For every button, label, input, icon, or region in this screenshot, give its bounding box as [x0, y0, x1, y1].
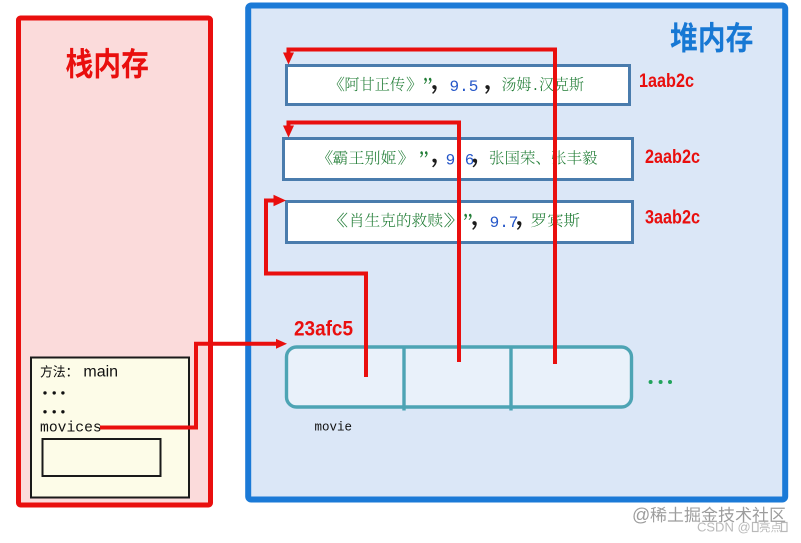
- svg-text:9.7: 9.7: [490, 214, 519, 232]
- svg-text:3aab2c: 3aab2c: [645, 208, 700, 229]
- svg-text:movices: movices: [40, 421, 102, 437]
- svg-text:movie: movie: [315, 421, 353, 435]
- svg-text:.: .: [532, 79, 540, 94]
- svg-text:CSDN @: CSDN @: [697, 520, 751, 535]
- svg-text:2aab2c: 2aab2c: [645, 147, 700, 168]
- svg-text:23afc5: 23afc5: [294, 318, 353, 341]
- svg-text:main: main: [83, 364, 118, 381]
- svg-text:@: @: [632, 505, 650, 525]
- svg-text:9.5: 9.5: [450, 78, 479, 96]
- svg-text:1aab2c: 1aab2c: [639, 71, 694, 92]
